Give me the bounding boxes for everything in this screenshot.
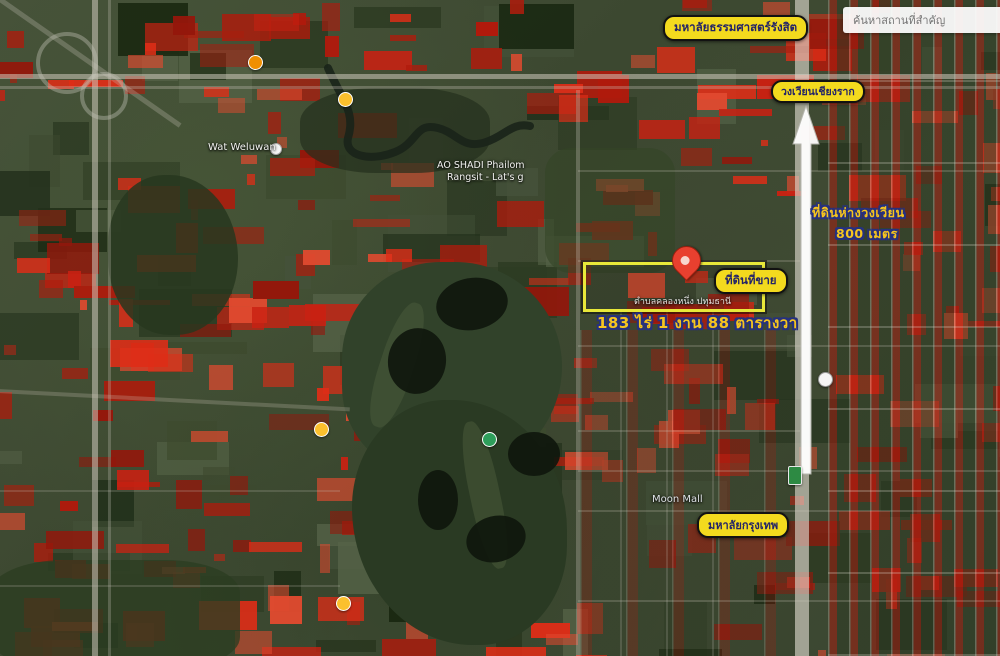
map-canvas[interactable]: Wat Weluwan AO SHADI Phailom Rangsit - L… <box>0 0 1000 656</box>
search-input[interactable] <box>843 7 1000 33</box>
